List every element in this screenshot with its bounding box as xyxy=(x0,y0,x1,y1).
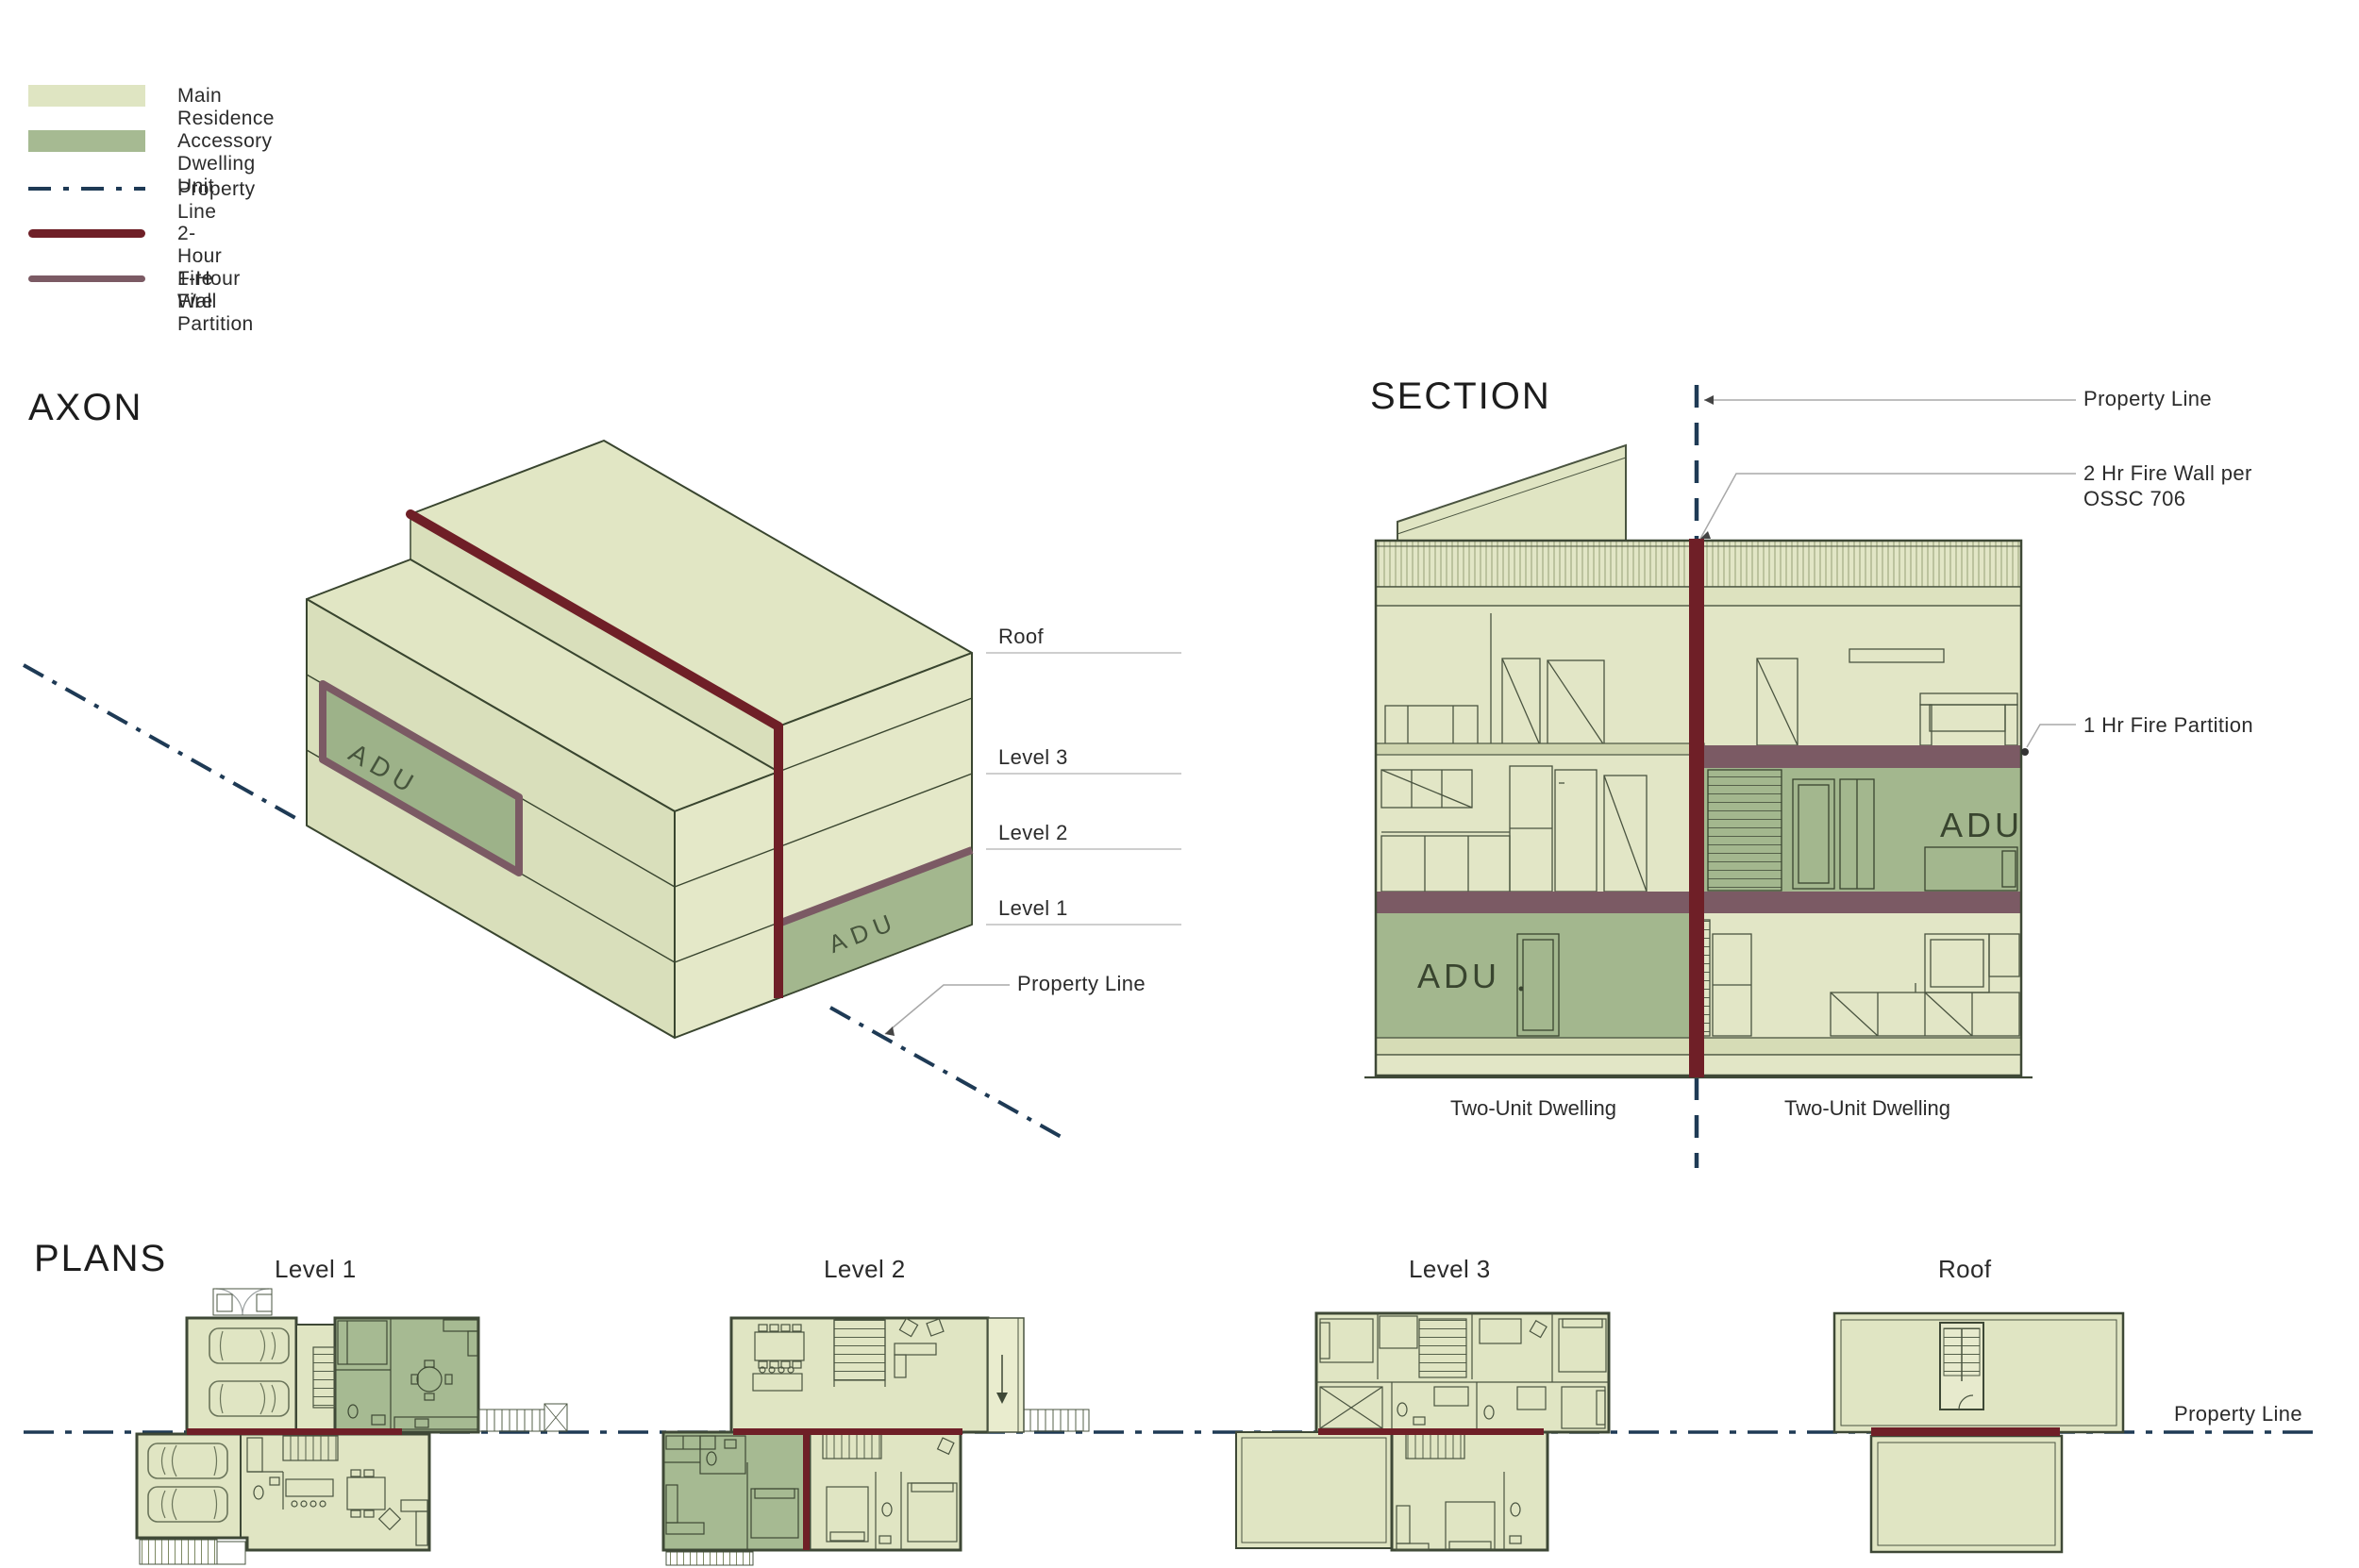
axon-level-label-lines xyxy=(986,653,1181,925)
section-fire-wall-label-line1: 2 Hr Fire Wall per xyxy=(2083,460,2252,486)
section-fire-wall-label-line2: OSSC 706 xyxy=(2083,486,2252,511)
plan-level3-label: Level 3 xyxy=(1409,1255,1491,1284)
section-adu-level1-label: ADU xyxy=(1417,957,1500,996)
axon-title: AXON xyxy=(28,387,142,429)
plans-property-line-label: Property Line xyxy=(2174,1402,2302,1426)
plans-title: PLANS xyxy=(34,1238,167,1280)
axon-drawing xyxy=(24,441,1181,1140)
architectural-diagram-sheet: Main Residence Accessory Dwelling Unit P… xyxy=(0,0,2359,1568)
main-residence-swatch-icon xyxy=(28,85,145,107)
plan-roof-fire-wall xyxy=(1871,1427,2060,1436)
plan-level1-fire-wall xyxy=(187,1428,402,1435)
axon-level1-label: Level 1 xyxy=(998,896,1068,921)
legend-label: Main Residence xyxy=(177,85,275,130)
fire-partition-key-icon xyxy=(28,275,145,282)
plan-level1-label: Level 1 xyxy=(275,1255,357,1284)
plan-level3-drawing xyxy=(1236,1313,1609,1550)
section-caption-right: Two-Unit Dwelling xyxy=(1778,1096,1957,1121)
plan-roof-drawing xyxy=(1834,1313,2123,1552)
section-title: SECTION xyxy=(1370,375,1551,418)
plan-level3-fire-wall xyxy=(1318,1428,1544,1435)
axon-property-line-label: Property Line xyxy=(1017,972,1146,996)
plan-level2-fire-wall-vertical xyxy=(803,1432,810,1550)
section-caption-left: Two-Unit Dwelling xyxy=(1444,1096,1623,1121)
fire-wall-key-icon xyxy=(28,229,145,238)
section-drawing xyxy=(1364,385,2076,1168)
legend-label: 1-Hour Fire Partition xyxy=(177,268,254,336)
axon-property-line-upper xyxy=(24,665,304,823)
legend-label: Property Line xyxy=(177,178,256,224)
section-property-line-label: Property Line xyxy=(2083,387,2212,411)
plan-level2-drawing xyxy=(663,1318,1089,1565)
plan-roof-label: Roof xyxy=(1938,1255,1992,1284)
diagram-canvas-svg xyxy=(0,0,2359,1568)
section-fire-partition-right xyxy=(1704,745,2021,768)
plan-level2-fire-wall xyxy=(733,1428,962,1435)
axon-level2-label: Level 2 xyxy=(998,821,1068,845)
axon-roof-label: Roof xyxy=(998,625,1044,649)
axon-property-line-lower xyxy=(830,1008,1066,1140)
plan-level1-drawing xyxy=(137,1289,567,1564)
section-adu-level2-label: ADU xyxy=(1940,806,2023,845)
axon-level3-label: Level 3 xyxy=(998,745,1068,770)
section-fire-partition-label: 1 Hr Fire Partition xyxy=(2083,713,2253,738)
property-line-key-icon xyxy=(28,187,145,191)
plan-level2-label: Level 2 xyxy=(824,1255,906,1284)
adu-swatch-icon xyxy=(28,130,145,152)
section-fire-wall-label: 2 Hr Fire Wall per OSSC 706 xyxy=(2083,460,2252,511)
section-fire-wall xyxy=(1689,539,1704,1077)
